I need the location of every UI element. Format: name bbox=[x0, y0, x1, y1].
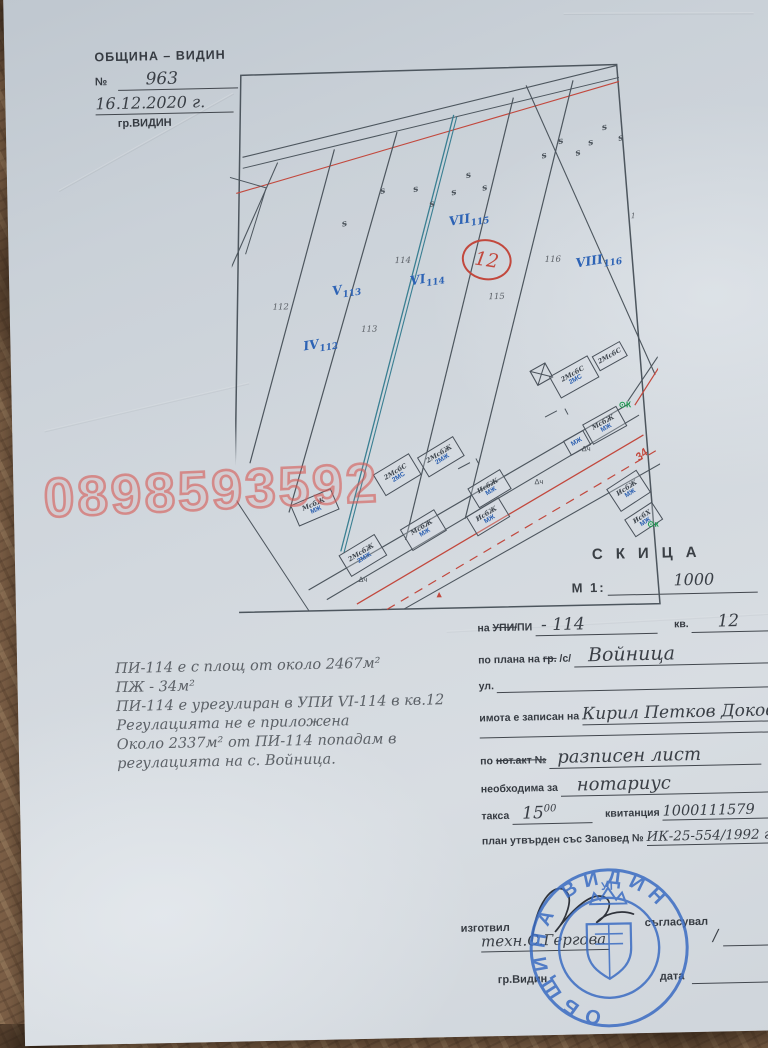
paper-crease bbox=[564, 12, 754, 15]
building: 2МсбС2МС bbox=[549, 355, 600, 398]
upi-label: на УПИ/ПИ bbox=[477, 621, 532, 634]
vegetation-symbol: s bbox=[574, 148, 582, 159]
paper-sheet: ОБЩИНА – ВИДИН № 963 16.12.2020 г. гр.ВИ… bbox=[3, 0, 768, 1046]
utility-point-ok: ⊙к bbox=[647, 519, 659, 530]
municipal-seal: ОБЩИНА ВИДИН УТ bbox=[519, 858, 699, 1038]
building: 2МсбЖ2МЖ bbox=[417, 436, 465, 477]
form-row-street: ул. bbox=[479, 674, 768, 693]
vegetation-symbol: s bbox=[540, 151, 548, 162]
fee-label: такса bbox=[481, 810, 509, 823]
upi-value: - 114 bbox=[541, 614, 585, 635]
kv-label: кв. bbox=[674, 618, 689, 630]
upi-label-VIII-116: VIII116 bbox=[575, 248, 623, 274]
building: МсбЖМЖ bbox=[400, 509, 447, 551]
building: ИсбХМЖ bbox=[624, 502, 663, 538]
red-triangle-mark: ▲ bbox=[435, 589, 444, 599]
needed-label: необходима за bbox=[481, 782, 558, 796]
receipt-label: квитанция bbox=[605, 807, 660, 820]
building: ИсбЖМЖ bbox=[466, 497, 510, 536]
survey-triangle-mark: Δч bbox=[582, 444, 591, 453]
order-label: план утвърден със Заповед № bbox=[482, 832, 644, 847]
vegetation-symbol: s bbox=[450, 187, 458, 198]
utility-point-OK: ⊙К bbox=[619, 399, 632, 410]
parcel-number-1: 1 bbox=[631, 211, 636, 220]
vegetation-symbol: s bbox=[587, 138, 595, 149]
parcel-number-112: 112 bbox=[273, 302, 289, 312]
upi-label-VII-115: VII115 bbox=[448, 208, 491, 233]
vegetation-symbol: s bbox=[428, 199, 436, 210]
street-label: ул. bbox=[479, 680, 495, 692]
form-row-deed: по нот.акт № разписен лист bbox=[480, 743, 762, 771]
building: ИсбЖМЖ bbox=[467, 469, 511, 508]
vegetation-symbol: s bbox=[481, 183, 489, 194]
building: МсбЖМЖ bbox=[582, 406, 627, 445]
vegetation-symbol: s bbox=[465, 170, 473, 181]
vegetation-symbol: s bbox=[617, 133, 625, 144]
vegetation-symbol: s bbox=[557, 136, 565, 147]
building: 2МсбЖ2МЖ bbox=[338, 534, 387, 577]
quarter-number-circle: 12 bbox=[459, 236, 515, 284]
scale-line bbox=[608, 591, 758, 596]
sketch-title: СКИЦА bbox=[592, 544, 710, 563]
parcel-number-113: 113 bbox=[361, 325, 377, 335]
office-stamp-block: ОБЩИНА – ВИДИН № 963 16.12.2020 г. гр.ВИ… bbox=[94, 46, 306, 130]
form-row-upi: на УПИ/ПИ - 114 кв. 12 bbox=[477, 610, 768, 637]
watermark-phone-number: 0898593592 bbox=[42, 450, 381, 530]
vegetation-symbol: s bbox=[341, 219, 349, 230]
office-stamp-org: ОБЩИНА – ВИДИН bbox=[94, 46, 304, 64]
scale-value: 1000 bbox=[673, 570, 714, 590]
parcel-number-115: 115 bbox=[488, 292, 504, 302]
form-row-fee: такса 1500 квитанция 1000111579 bbox=[481, 798, 768, 825]
vegetation-symbol: s bbox=[379, 186, 387, 197]
form-row-owner: имота е записан на Кирил Петков Доков bbox=[479, 700, 768, 727]
paper-crease bbox=[44, 382, 249, 432]
kv-value: 12 bbox=[717, 611, 739, 631]
seal-top-text: УТ bbox=[601, 881, 615, 893]
vegetation-symbol: s bbox=[601, 122, 609, 133]
parcel-number-116: 116 bbox=[545, 255, 561, 265]
receipt-value: 1000111579 bbox=[662, 802, 755, 820]
order-value: ИК-25-554/1992 г. bbox=[646, 826, 768, 845]
form-row-plan: по плана на гр. /с/ Войница bbox=[478, 640, 768, 669]
vegetation-symbol: s bbox=[412, 184, 420, 195]
approved-value: / bbox=[713, 926, 719, 945]
upi-label-VI-114: VI114 bbox=[409, 268, 446, 292]
handwritten-notes: ПИ-114 е с площ от около 2467м² ПЖ - 34м… bbox=[115, 653, 467, 774]
survey-triangle-mark: Δч bbox=[358, 575, 367, 584]
photo-of-cadastral-sketch-document: { "office_stamp": { "org": "ОБЩИНА – ВИД… bbox=[0, 0, 768, 1024]
upi-label-V-113: V113 bbox=[331, 279, 362, 302]
building: МсбЖМЖ bbox=[290, 488, 340, 526]
deed-value: разписен лист bbox=[557, 744, 701, 768]
office-stamp-number-label: № bbox=[95, 76, 108, 88]
scale-label: М 1: bbox=[571, 580, 605, 596]
building: ИсбЖМЖ bbox=[606, 470, 651, 512]
plan-value: Войница bbox=[588, 642, 675, 666]
approved-block: / bbox=[713, 924, 768, 946]
cadastral-map: s s s s s s s s s s s s s 112 113 114 11… bbox=[228, 63, 663, 617]
office-stamp-city: гр.ВИДИН bbox=[118, 114, 306, 130]
building: 2МсбС2МС bbox=[373, 453, 422, 496]
street-number: 34 bbox=[633, 447, 650, 464]
building: 2МсбС bbox=[592, 341, 628, 371]
form-row-needed: необходима за нотариус bbox=[481, 770, 768, 798]
form-blank-line bbox=[480, 730, 768, 738]
parcel-number-114: 114 bbox=[395, 256, 411, 266]
office-stamp-number-value: 963 bbox=[145, 69, 178, 90]
deed-label: по нот.акт № bbox=[480, 754, 546, 767]
plan-label: по плана на гр. /с/ bbox=[478, 653, 571, 667]
office-stamp-date-value: 16.12.2020 г. bbox=[95, 92, 205, 113]
fee-value: 1500 bbox=[522, 803, 557, 824]
owner-value: Кирил Петков Доков bbox=[582, 700, 768, 724]
date-line bbox=[692, 980, 768, 984]
owner-label: имота е записан на bbox=[479, 710, 579, 724]
needed-value: нотариус bbox=[577, 772, 672, 795]
form-row-order: план утвърден със Заповед № ИК-25-554/19… bbox=[482, 826, 768, 849]
map-lines bbox=[228, 63, 663, 617]
survey-triangle-mark: Δч bbox=[534, 477, 543, 486]
upi-label-IV-112: IV112 bbox=[302, 333, 339, 357]
building: МЖ bbox=[563, 430, 591, 456]
